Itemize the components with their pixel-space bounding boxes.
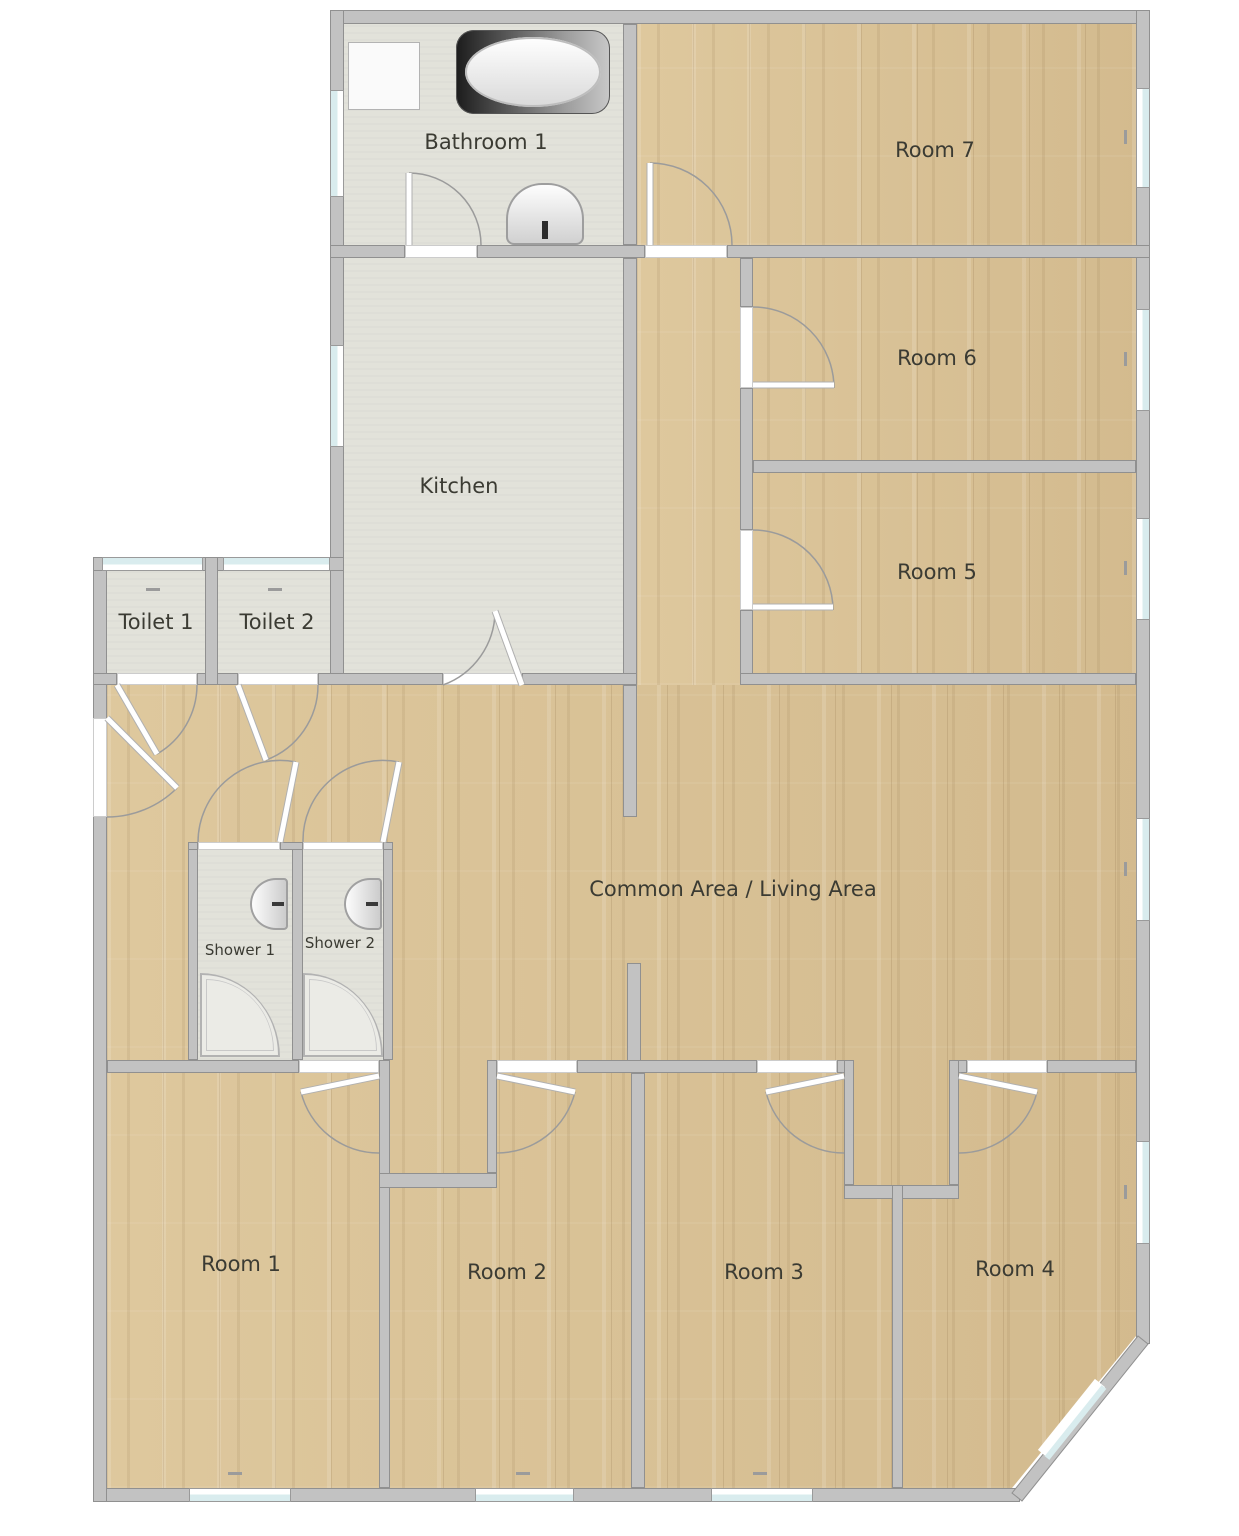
wall	[740, 673, 1136, 685]
wall	[330, 245, 405, 258]
door-opening-shower-1	[198, 842, 280, 850]
wall	[477, 245, 645, 258]
wall	[949, 1060, 959, 1185]
wall	[383, 842, 393, 850]
door-opening-bathroom-1	[405, 245, 477, 258]
room-label-kitchen: Kitchen	[420, 474, 499, 498]
room-label-room-6: Room 6	[897, 346, 977, 370]
room-label-shower-2: Shower 2	[305, 934, 375, 952]
door-opening-room-4	[967, 1060, 1047, 1073]
window-sill-mark	[268, 588, 282, 591]
door-opening-shower-2	[303, 842, 383, 850]
wall	[740, 258, 753, 307]
window	[223, 557, 330, 571]
wall	[487, 1060, 497, 1173]
window	[1136, 309, 1150, 411]
window-sill-mark	[146, 588, 160, 591]
window	[1136, 1141, 1150, 1244]
window	[1136, 818, 1150, 921]
common-and-rooms-floor	[107, 685, 1136, 1488]
room-label-room-2: Room 2	[467, 1260, 547, 1284]
wall	[383, 842, 393, 1060]
window	[1136, 88, 1150, 188]
door-opening-toilet-2	[238, 673, 318, 685]
wall	[522, 673, 637, 685]
wall	[318, 673, 443, 685]
room-7-floor	[637, 24, 1136, 685]
wall	[292, 842, 303, 1060]
wall	[93, 557, 107, 1502]
bathroom-sink-icon	[506, 183, 584, 245]
wall	[753, 460, 1136, 473]
window-sill-mark	[1124, 1185, 1127, 1199]
window	[102, 557, 203, 571]
window-sill-mark	[1124, 352, 1127, 366]
door-opening-entrance	[93, 718, 107, 817]
wall	[623, 24, 637, 245]
wall	[107, 1060, 299, 1073]
wall	[205, 557, 218, 685]
wall	[188, 842, 198, 850]
wall	[892, 1185, 903, 1488]
door-opening-room-1	[299, 1060, 379, 1073]
wall	[623, 685, 637, 817]
wall	[623, 258, 637, 685]
wall	[631, 1073, 645, 1488]
bathroom-kitchen-floor	[344, 24, 623, 685]
wall	[93, 673, 117, 685]
window-sill-mark	[228, 1472, 242, 1475]
wall	[727, 245, 1150, 258]
room-label-toilet-2: Toilet 2	[240, 610, 315, 634]
wall	[844, 1060, 854, 1185]
bathtub-icon	[456, 30, 610, 114]
window	[330, 90, 344, 197]
door-opening-room-6	[740, 307, 753, 388]
wall	[280, 842, 303, 850]
wall	[188, 842, 198, 1060]
room-label-toilet-1: Toilet 1	[119, 610, 194, 634]
room-label-room-4: Room 4	[975, 1257, 1055, 1281]
room-label-shower-1: Shower 1	[205, 941, 275, 959]
door-opening-room-3	[757, 1060, 837, 1073]
wall	[627, 963, 641, 1073]
window	[1136, 518, 1150, 620]
window-sill-mark	[1124, 862, 1127, 876]
wall	[330, 10, 1150, 24]
door-opening-room-2	[497, 1060, 577, 1073]
wall	[379, 1060, 390, 1488]
room-label-room-1: Room 1	[201, 1252, 281, 1276]
wall	[1047, 1060, 1136, 1073]
window	[711, 1488, 813, 1502]
room-label-room-5: Room 5	[897, 560, 977, 584]
room-label-room-7: Room 7	[895, 138, 975, 162]
window-sill-mark	[1124, 130, 1127, 144]
wall	[577, 1060, 757, 1073]
door-opening-room-5	[740, 530, 753, 610]
window-sill-mark	[753, 1472, 767, 1475]
window-sill-mark	[1124, 561, 1127, 575]
window-sill-mark	[516, 1472, 530, 1475]
wall	[740, 388, 753, 530]
window	[475, 1488, 574, 1502]
wall	[379, 1173, 497, 1188]
door-opening-kitchen	[443, 673, 522, 685]
floor-plan: Bathroom 1 Room 7 Kitchen Room 6 Room 5 …	[0, 0, 1239, 1536]
shower-cubicle-icon	[348, 42, 420, 110]
window	[330, 345, 344, 447]
door-opening-toilet-1	[117, 673, 197, 685]
door-opening-room-7	[645, 245, 727, 258]
room-label-room-3: Room 3	[724, 1260, 804, 1284]
room-label-common-area: Common Area / Living Area	[589, 877, 876, 901]
window	[189, 1488, 291, 1502]
bathtub-basin	[465, 37, 601, 107]
room-label-bathroom-1: Bathroom 1	[424, 130, 547, 154]
